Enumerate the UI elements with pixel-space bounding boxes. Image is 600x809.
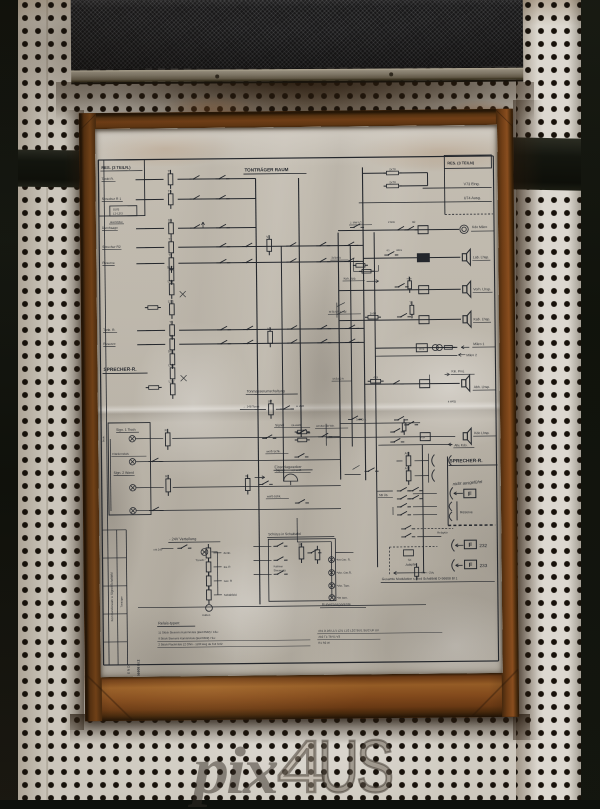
svg-text:Kln. Proj.: Kln. Proj. <box>452 369 465 373</box>
svg-text:2x70: 2x70 <box>389 167 396 171</box>
svg-text:4Ω: 4Ω <box>412 220 415 224</box>
svg-text:233: 233 <box>480 563 488 568</box>
svg-text:rot-weiß: rot-weiß <box>291 423 301 427</box>
svg-text:232: 232 <box>479 543 487 548</box>
svg-text:Kdo Lhsp.: Kdo Lhsp. <box>474 431 489 435</box>
svg-text:Durchsage: Durchsage <box>102 226 118 230</box>
svg-text:4Ω: 4Ω <box>386 249 389 252</box>
svg-text:U74 Ausg.: U74 Ausg. <box>464 196 481 200</box>
svg-text:Sign. 1 Tisch: Sign. 1 Tisch <box>116 428 136 432</box>
svg-text:PSA: PSA <box>420 436 425 439</box>
svg-text:9 Stück Siemens Kammrelais: 9 Stück Siemens Kammrelais (Bsd 6562) / … <box>158 636 216 641</box>
svg-text:Rb ≈ -2Vu: Rb ≈ -2Vu <box>422 571 435 575</box>
svg-text:Vorh. Lhsp.: Vorh. Lhsp. <box>473 287 491 291</box>
svg-text:Tel.: Tel. <box>408 558 413 562</box>
svg-text:Lab. Lhsp.: Lab. Lhsp. <box>473 255 489 259</box>
svg-text:V73 Eing.: V73 Eing. <box>464 182 480 186</box>
svg-text:Ab1 D.DS L1/1 L2/1 L1/2 L2/2: Ab1 D.DS L1/1 L2/1 L1/2 L2/2 SU/1 SU/2 U… <box>318 628 379 633</box>
svg-text:T4: T4 <box>169 334 173 338</box>
svg-text:Gesamte Modulation s.Mod Schal: Gesamte Modulation s.Mod Schaltbild D-56… <box>382 576 458 581</box>
svg-text:Relais-typen:: Relais-typen: <box>158 621 180 625</box>
svg-text:M.Sch2 A: M.Sch2 A <box>333 377 344 381</box>
svg-text:Außen: Außen <box>202 613 211 617</box>
svg-text:Im tonr.: Im tonr. <box>338 596 348 600</box>
svg-text:RES. (3 TEILN): RES. (3 TEILN) <box>447 161 474 165</box>
svg-text:Sprecher R 1: Sprecher R 1 <box>102 197 122 201</box>
svg-text:J. MW-f.G.: J. MW-f.G. <box>350 220 363 224</box>
svg-text:SU/2: SU/2 <box>168 349 175 353</box>
svg-text:2x98: 2x98 <box>370 311 377 315</box>
svg-text:Reserve: Reserve <box>103 342 115 346</box>
svg-text:R1 R2 W: R1 R2 W <box>318 641 330 645</box>
svg-text:Kommandoraum u. Signal-Schaltb: Kommandoraum u. Signal-Schaltbild <box>110 572 115 621</box>
svg-text:→ 148 Tonm: → 148 Tonm <box>243 404 260 408</box>
svg-text:Anrufen mit Wkr.: Anrufen mit Wkr. <box>316 425 335 428</box>
svg-text:F: F <box>468 492 472 498</box>
svg-text:Ab1: Ab1 <box>405 451 411 455</box>
svg-text:Steuerung: Steuerung <box>274 568 287 572</box>
svg-text:T1: T1 <box>168 237 172 241</box>
svg-text:11 Stück Siemens Kammrelais: 11 Stück Siemens Kammrelais (Bsd 6562) /… <box>158 630 219 635</box>
svg-text:Tonmasserumschaltung: Tonmasserumschaltung <box>247 389 285 393</box>
svg-text:SB Üb.: SB Üb. <box>379 493 389 497</box>
svg-text:UP: UP <box>268 399 272 403</box>
svg-text:4x9: 4x9 <box>373 375 378 379</box>
svg-text:- 24V Verteilung: - 24V Verteilung <box>169 537 196 541</box>
svg-text:2x70: 2x70 <box>389 180 396 184</box>
svg-text:WRG: WRG <box>396 249 402 252</box>
svg-text:Tonb. R.: Tonb. R. <box>103 328 115 332</box>
svg-text:TONTRÄGER RAUM: TONTRÄGER RAUM <box>244 166 288 172</box>
svg-text:u. 2xR: u. 2xR <box>296 404 304 408</box>
svg-text:"besch.": "besch." <box>195 558 205 562</box>
svg-text:Zentr.: Zentr. <box>223 551 231 555</box>
svg-text:E N D: E N D <box>127 665 131 674</box>
svg-text:F: F <box>469 543 473 549</box>
svg-text:2 MW: 2 MW <box>388 220 395 224</box>
svg-text:Abh. Lhsp.: Abh. Lhsp. <box>474 385 490 389</box>
svg-text:Vor. Ger.R.: Vor. Ger.R. <box>338 571 352 575</box>
svg-text:Sprecher R2: Sprecher R2 <box>102 245 121 249</box>
svg-text:DV2: DV2 <box>419 347 425 351</box>
svg-text:Mikro 2: Mikro 2 <box>466 353 477 357</box>
svg-text:orb.24V: orb.24V <box>153 547 162 551</box>
svg-text:4 W6Ω: 4 W6Ω <box>448 399 456 403</box>
svg-text:Schütze in Schalttafel: Schütze in Schalttafel <box>268 532 301 536</box>
svg-text:T6: T6 <box>168 189 172 193</box>
svg-text:Kdo Mikro: Kdo Mikro <box>472 225 487 229</box>
svg-text:W.Sch.P. 4 mgl: W.Sch.P. 4 mgl <box>329 309 347 313</box>
svg-text:Ab2: Ab2 <box>405 466 411 470</box>
svg-text:W: W <box>245 474 248 478</box>
svg-text:Adapter: Adapter <box>404 562 417 567</box>
svg-text:D5: D5 <box>168 218 172 222</box>
svg-text:L1/1: L1/1 <box>168 279 174 283</box>
svg-text:Mikro 1: Mikro 1 <box>473 342 484 346</box>
svg-text:L2/1: L2/1 <box>168 299 174 303</box>
svg-text:SPRECHER-R.: SPRECHER-R. <box>449 458 482 464</box>
svg-text:weiß-Schk.: weiß-Schk. <box>266 449 281 453</box>
svg-text:2 Stück Flachrelais 12 Ohm -: 2 Stück Flachrelais 12 Ohm - 1100 weg da… <box>158 642 223 647</box>
svg-text:V1: V1 <box>266 235 270 239</box>
svg-text:2a. R: 2a. R <box>224 565 231 569</box>
svg-text:R2: R2 <box>165 474 169 478</box>
svg-text:Im Ger. R.: Im Ger. R. <box>337 558 350 562</box>
svg-text:L2/2: L2/2 <box>169 379 175 383</box>
svg-text:abschöpfen: abschöpfen <box>110 221 124 224</box>
svg-text:Relaytür: Relaytür <box>437 530 448 534</box>
svg-text:nicht ausgeführt: nicht ausgeführt <box>452 479 483 486</box>
svg-text:F: F <box>469 563 473 569</box>
svg-text:Bearb.: Bearb. <box>102 435 105 442</box>
svg-text:Reserve: Reserve <box>460 510 473 514</box>
svg-text:SPRECHER-R.: SPRECHER-R. <box>103 367 136 373</box>
svg-text:Vor. Tonr.: Vor. Tonr. <box>338 584 350 588</box>
svg-text:Einschlagwecker: Einschlagwecker <box>275 465 303 469</box>
svg-text:weiß-Schk.: weiß-Schk. <box>267 494 282 498</box>
svg-text:Ab2 T1-T8 V1-V3: Ab2 T1-T8 V1-V3 <box>318 635 340 639</box>
svg-text:T5: T5 <box>168 169 172 173</box>
svg-text:SR: SR <box>298 542 303 546</box>
svg-text:Tonträger: Tonträger <box>119 596 123 607</box>
svg-text:Reserve: Reserve <box>102 261 114 265</box>
svg-text:D-56608 Bl 2: D-56608 Bl 2 <box>137 659 141 679</box>
svg-text:Ger. R: Ger. R <box>224 579 232 583</box>
svg-text:Alle Kdo.: Alle Kdo. <box>454 443 467 447</box>
svg-text:Signal: Signal <box>275 423 284 427</box>
svg-text:R1: R1 <box>165 428 169 432</box>
svg-text:Schaltfeld: Schaltfeld <box>224 593 237 597</box>
svg-text:Ruhetransparente: Ruhetransparente <box>322 602 351 606</box>
svg-text:L1/2: L1/2 <box>168 363 174 367</box>
svg-text:Koh. App.: Koh. App. <box>344 276 357 280</box>
svg-text:Tr: Tr <box>409 301 412 305</box>
svg-text:Tonb! R.: Tonb! R. <box>101 177 113 181</box>
svg-text:3x5MFA: 3x5MFA <box>331 256 341 260</box>
svg-text:Flackerrelais: Flackerrelais <box>112 452 129 456</box>
svg-text:T2: T2 <box>168 253 172 257</box>
svg-text:L1-L2/3: L1-L2/3 <box>113 211 123 215</box>
svg-text:T3: T3 <box>169 320 173 324</box>
svg-text:RES. (3 TEILN.): RES. (3 TEILN.) <box>101 165 131 170</box>
svg-text:Kab. Lhsp.: Kab. Lhsp. <box>473 317 490 321</box>
svg-text:SU/1: SU/1 <box>167 265 174 269</box>
svg-text:Kabinen: Kabinen <box>274 564 284 568</box>
svg-text:Sign. 2 Wand: Sign. 2 Wand <box>114 471 134 475</box>
